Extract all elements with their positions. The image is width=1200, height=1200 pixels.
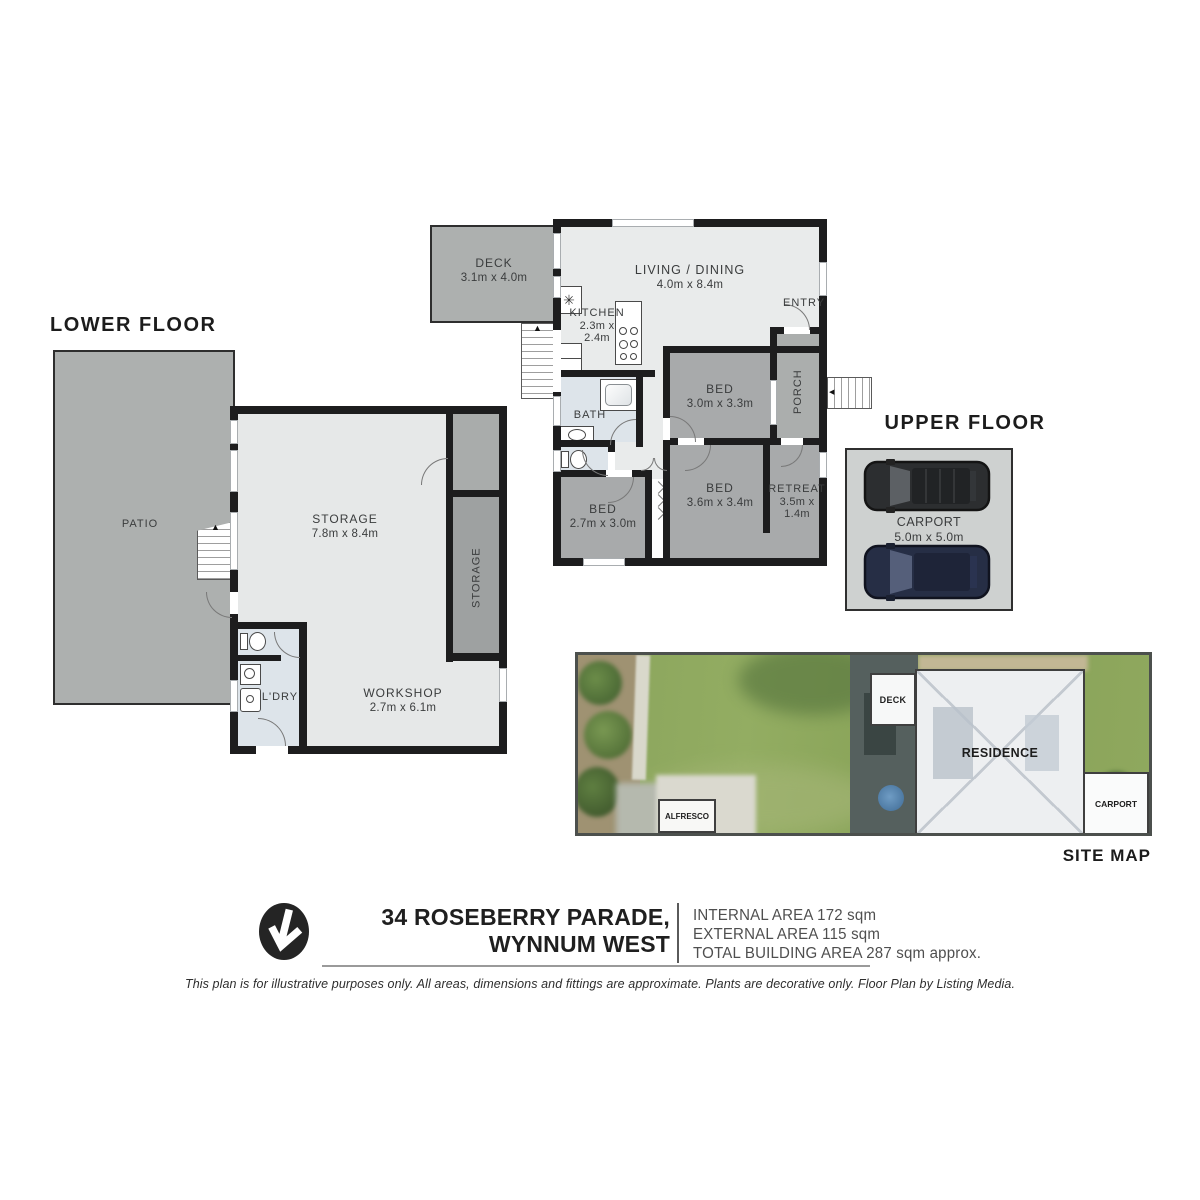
sitemap-carport-box: CARPORT <box>1083 772 1149 836</box>
storage-label: STORAGE 7.8m x 8.4m <box>245 512 445 542</box>
footer-divider <box>677 903 679 963</box>
patio-label: PATIO <box>80 517 200 531</box>
wall <box>230 406 507 414</box>
upper-floor-title: UPPER FLOOR <box>860 412 1070 435</box>
car-top-view-navy <box>862 542 992 602</box>
door-opening <box>663 418 670 440</box>
property-address: 34 ROSEBERRY PARADE, WYNNUM WEST <box>320 904 670 958</box>
listing-media-logo <box>258 902 310 961</box>
sitemap-alfresco-box: ALFRESCO <box>658 799 716 833</box>
window <box>819 262 827 296</box>
window <box>499 668 507 702</box>
wall <box>233 622 307 629</box>
stairs-arrow-icon: ◀ <box>829 388 834 397</box>
toilet-tank-icon <box>561 451 569 468</box>
bed-left-label: BED 2.7m x 3.0m <box>558 502 648 532</box>
deck-label: DECK 3.1m x 4.0m <box>434 256 554 286</box>
carport-label: CARPORT 5.0m x 5.0m <box>845 514 1013 545</box>
window <box>230 512 238 570</box>
storage-side-label: STORAGE <box>452 538 501 618</box>
stove-burner-icon <box>620 353 627 360</box>
car-top-view-dark <box>862 459 992 513</box>
washer-icon <box>240 664 261 685</box>
sitemap-residence-box: RESIDENCE <box>915 669 1085 836</box>
area-summary: INTERNAL AREA 172 sqm EXTERNAL AREA 115 … <box>693 906 1003 963</box>
stove-burner-icon <box>630 327 638 335</box>
lower-floor-title: LOWER FLOOR <box>50 314 216 337</box>
tree-icon <box>584 711 632 759</box>
wall <box>446 490 503 497</box>
retreat-label: RETREAT 3.5m x 1.4m <box>768 483 826 521</box>
workshop-label: WORKSHOP 2.7m x 6.1m <box>320 686 486 716</box>
window <box>230 420 238 444</box>
floorplan-page: LOWER FLOOR PATIO ▲ STORAGE 7.8m x 8.4m … <box>0 0 1200 1200</box>
window <box>553 450 561 472</box>
external-area: EXTERNAL AREA 115 sqm <box>693 925 1003 944</box>
laundry-label: L'DRY <box>258 690 302 704</box>
footer-rule <box>322 965 870 967</box>
toilet-tank-icon <box>240 633 248 650</box>
wall <box>299 624 307 754</box>
bed-front-label: BED 3.0m x 3.3m <box>670 382 770 412</box>
wall <box>553 440 615 447</box>
window <box>819 452 827 478</box>
stove-burner-icon <box>630 353 637 360</box>
solar-panels <box>933 707 973 779</box>
path <box>632 655 650 780</box>
wall <box>663 346 827 353</box>
stairs-up-arrow-icon: ▲ <box>533 324 542 333</box>
entry-label: ENTRY <box>783 296 825 310</box>
solar-panels <box>1025 715 1059 771</box>
porch-label: PORCH <box>772 358 824 426</box>
living-dining-label: LIVING / DINING 4.0m x 8.4m <box>620 262 760 293</box>
site-map-aerial: DECK RESIDENCE CARPORT ALFRESCO <box>575 652 1152 836</box>
total-area: TOTAL BUILDING AREA 287 sqm approx. <box>693 944 1003 963</box>
window <box>612 219 694 227</box>
wall <box>446 653 506 661</box>
storage-box-area <box>450 409 503 497</box>
address-line-1: 34 ROSEBERRY PARADE, <box>320 904 670 931</box>
window <box>553 233 561 269</box>
tree-icon <box>575 767 620 817</box>
door-opening <box>781 438 803 445</box>
door-opening <box>256 746 288 754</box>
tree-icon <box>578 661 622 705</box>
stair-opening <box>553 330 561 392</box>
stove-burner-icon <box>630 340 638 348</box>
bath-label: BATH <box>560 408 620 422</box>
shower-icon <box>600 379 637 411</box>
window <box>583 558 625 566</box>
toilet-icon <box>249 632 266 651</box>
kitchen-label: KITCHEN 2.3m x 2.4m <box>566 307 628 345</box>
door-opening <box>606 470 632 477</box>
door-opening <box>608 452 615 470</box>
site-map-title: SITE MAP <box>951 846 1151 866</box>
window <box>230 450 238 492</box>
pool-icon <box>878 785 904 811</box>
disclaimer-text: This plan is for illustrative purposes o… <box>100 977 1100 991</box>
address-line-2: WYNNUM WEST <box>320 931 670 958</box>
window <box>230 680 238 712</box>
sitemap-deck-box: DECK <box>870 673 916 726</box>
wall <box>446 409 453 662</box>
stairs-up-arrow-icon: ▲ <box>211 523 220 532</box>
bed-middle-label: BED 3.6m x 3.4m <box>670 481 770 511</box>
wall <box>636 370 643 447</box>
internal-area: INTERNAL AREA 172 sqm <box>693 906 1003 925</box>
wall <box>237 655 281 661</box>
window <box>553 276 561 298</box>
